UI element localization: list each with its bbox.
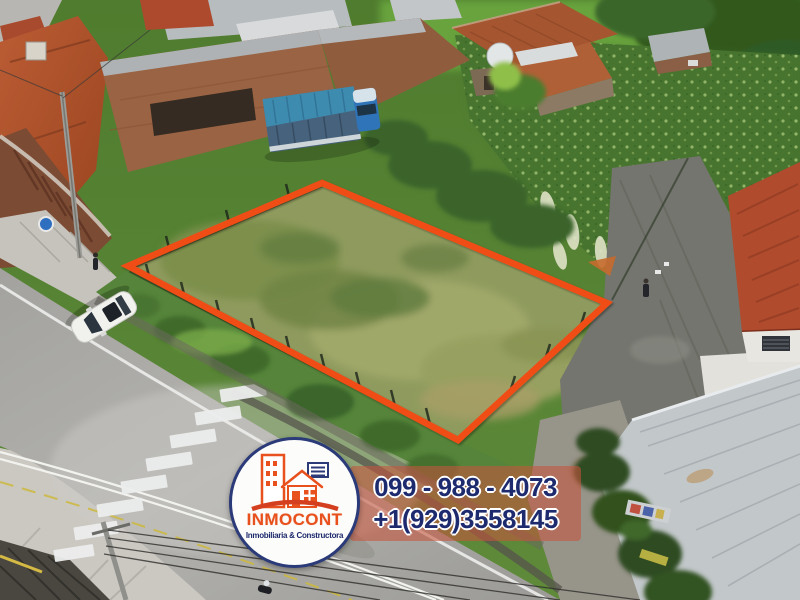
brand-name: INMOCONT: [247, 510, 343, 530]
traffic-sign: [39, 217, 53, 231]
bright-bush: [489, 62, 521, 90]
phone-intl: +1(929)3558145: [373, 504, 558, 535]
phone-banner: 099 - 988 - 4073 +1(929)3558145: [350, 466, 581, 541]
pedestrian: [93, 253, 98, 271]
logo-badge: INMOCONT Inmobiliaria & Constructora: [229, 437, 360, 568]
brand-tagline: Inmobiliaria & Constructora: [246, 531, 343, 540]
chimney: [26, 42, 46, 60]
logo-buildings-icon: [250, 451, 340, 513]
phone-local: 099 - 988 - 4073: [374, 472, 557, 503]
aerial-photo: 099 - 988 - 4073 +1(929)3558145 INMOCONT…: [0, 0, 800, 600]
